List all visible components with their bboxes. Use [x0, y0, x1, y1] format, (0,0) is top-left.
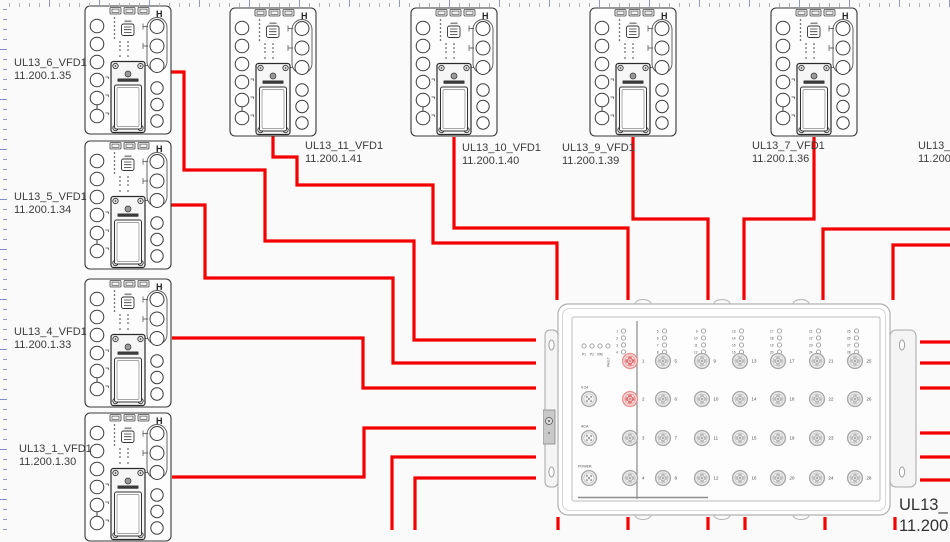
brand-emblem [630, 73, 636, 79]
panel-door [115, 220, 142, 264]
ethernet-switch[interactable]: P1P2RMFAULT11223344V.24ACAPOWER567856789… [543, 298, 918, 530]
port-23 [810, 431, 825, 446]
mounting-bracket-left [543, 330, 558, 487]
terminal-blocks-icon [436, 10, 475, 17]
svg-text:19: 19 [770, 343, 774, 347]
switch-label: UL13_ 11.200 [899, 495, 948, 537]
svg-text:16: 16 [752, 476, 757, 481]
terminal-blocks-icon [615, 10, 654, 17]
brand-emblem [451, 73, 457, 79]
ruler-vertical [0, 0, 7, 530]
vfd-device-ul13-1[interactable]: H [84, 412, 172, 542]
device-name: UL13_6_VFD1 [14, 57, 87, 70]
front-panel [616, 64, 650, 135]
terminal-blocks-icon [110, 415, 149, 422]
svg-text:P1: P1 [582, 353, 586, 357]
vfd-device-ul13-9[interactable]: H [589, 7, 677, 137]
brand-emblem [811, 73, 817, 79]
panel-door [115, 85, 142, 129]
svg-text:13: 13 [732, 329, 736, 333]
svg-text:20: 20 [770, 350, 774, 354]
device-name: UL13_11_VFD1 [305, 140, 383, 153]
svg-text:27: 27 [847, 343, 851, 347]
svg-text:8: 8 [657, 350, 659, 354]
svg-text:14: 14 [732, 336, 736, 340]
port-21 [810, 354, 825, 369]
svg-text:18: 18 [770, 336, 774, 340]
svg-text:11: 11 [714, 436, 719, 441]
wire-right-edge-wire-b[interactable] [893, 245, 950, 300]
device-name: UL13_8_VFD1 [918, 140, 950, 153]
port-12 [695, 471, 710, 486]
brand-emblem [125, 344, 131, 350]
port-16 [733, 471, 748, 486]
svg-text:20: 20 [790, 476, 795, 481]
port-24 [810, 471, 825, 486]
terminal-blocks-icon [255, 10, 294, 17]
brand-emblem [125, 206, 131, 212]
port-15 [733, 431, 748, 446]
terminal-blocks-icon [796, 10, 835, 17]
svg-text:22: 22 [829, 397, 834, 402]
svg-text:23: 23 [809, 343, 813, 347]
panel-door [441, 87, 468, 131]
device-ip: 11.200.1.37 [918, 153, 950, 166]
front-panel [111, 197, 145, 268]
switch-label-name: UL13_ [899, 495, 948, 516]
port-28 [848, 471, 863, 486]
port-25 [848, 354, 863, 369]
front-panel [111, 469, 145, 540]
svg-text:9: 9 [696, 329, 698, 333]
panel-door [620, 87, 647, 131]
port-11 [695, 431, 710, 446]
svg-text:RM: RM [598, 353, 603, 357]
port-9 [695, 354, 710, 369]
front-panel [111, 335, 145, 406]
port-18 [771, 392, 786, 407]
port-1 [623, 354, 638, 369]
port-5 [656, 354, 671, 369]
device-label-ul13-11: UL13_11_VFD111.200.1.41 [305, 140, 383, 166]
port-3 [623, 431, 638, 446]
brand-emblem [270, 73, 276, 79]
svg-text:6: 6 [657, 336, 659, 340]
switch-label-ip: 11.200 [899, 516, 948, 537]
port-13 [733, 354, 748, 369]
svg-text:14: 14 [752, 397, 757, 402]
brand-emblem [125, 478, 131, 484]
device-label-ul13-4: UL13_4_VFD111.200.1.33 [14, 326, 87, 352]
svg-text:23: 23 [829, 436, 834, 441]
nameplate-bar [118, 352, 139, 355]
din-clip [543, 410, 555, 444]
panel-door [115, 492, 142, 536]
svg-text:4: 4 [616, 350, 618, 354]
panel-door [801, 87, 828, 131]
svg-text:10: 10 [714, 397, 719, 402]
front-panel [437, 64, 471, 135]
svg-text:15: 15 [732, 343, 736, 347]
svg-text:21: 21 [809, 329, 813, 333]
port-7 [656, 431, 671, 446]
svg-text:21: 21 [829, 359, 834, 364]
port-6 [656, 392, 671, 407]
svg-text:22: 22 [809, 336, 813, 340]
terminal-blocks-icon [110, 8, 149, 15]
svg-text:28: 28 [847, 350, 851, 354]
vfd-device-ul13-4[interactable]: H [84, 278, 172, 408]
device-label-ul13-1: UL13_1_VFD111.200.1.30 [19, 443, 92, 469]
vfd-device-ul13-10[interactable]: H [410, 7, 498, 137]
svg-text:1: 1 [616, 329, 618, 333]
port-4 [623, 471, 638, 486]
device-label-ul13-8: UL13_8_VFD111.200.1.37 [918, 140, 950, 166]
device-name: UL13_5_VFD1 [14, 191, 87, 204]
svg-text:7: 7 [657, 343, 659, 347]
svg-text:18: 18 [790, 397, 795, 402]
nameplate-bar [804, 81, 825, 84]
aux-port-v24 [582, 392, 597, 407]
vfd-device-ul13-7[interactable]: H [770, 7, 858, 137]
svg-text:12: 12 [694, 350, 698, 354]
svg-text:24: 24 [809, 350, 813, 354]
device-ip: 11.200.1.35 [14, 70, 87, 83]
terminal-blocks-icon [110, 143, 149, 150]
device-ip: 11.200.1.30 [19, 456, 92, 469]
svg-text:16: 16 [732, 350, 736, 354]
front-panel [111, 62, 145, 133]
port-27 [848, 431, 863, 446]
svg-text:25: 25 [847, 329, 851, 333]
device-ip: 11.200.1.41 [305, 153, 383, 166]
svg-text:25: 25 [867, 359, 872, 364]
device-ip: 11.200.1.36 [752, 153, 825, 166]
port-22 [810, 392, 825, 407]
wire-ul13-9-to-switch[interactable] [633, 137, 708, 300]
port-8 [656, 471, 671, 486]
port-2 [623, 392, 638, 407]
device-label-ul13-6: UL13_6_VFD111.200.1.35 [14, 57, 87, 83]
port-17 [771, 354, 786, 369]
svg-text:24: 24 [829, 476, 834, 481]
svg-text:26: 26 [867, 397, 872, 402]
ruler-horizontal [0, 0, 950, 7]
svg-text:11: 11 [694, 343, 698, 347]
device-label-ul13-7: UL13_7_VFD111.200.1.36 [752, 140, 825, 166]
nameplate-bar [118, 79, 139, 82]
svg-text:ACA: ACA [581, 425, 589, 429]
svg-text:15: 15 [752, 436, 757, 441]
panel-door [115, 358, 142, 402]
port-20 [771, 471, 786, 486]
nameplate-bar [118, 214, 139, 217]
aux-port-power [582, 471, 597, 486]
svg-text:26: 26 [847, 336, 851, 340]
switch-frame [543, 300, 916, 520]
terminal-blocks-icon [110, 281, 149, 288]
svg-text:27: 27 [867, 436, 872, 441]
wire-right-edge-wire-a[interactable] [823, 229, 950, 300]
panel-door [260, 87, 287, 131]
wire-bottom-left-wire-b[interactable] [415, 478, 536, 530]
nameplate-bar [263, 81, 284, 84]
device-name: UL13_1_VFD1 [19, 443, 92, 456]
device-label-ul13-9: UL13_9_VFD111.200.1.39 [562, 142, 635, 168]
device-name: UL13_9_VFD1 [562, 142, 635, 155]
wire-ul13-1-to-switch[interactable] [172, 428, 536, 477]
device-ip: 11.200.1.33 [14, 339, 87, 352]
port-14 [733, 392, 748, 407]
svg-text:3: 3 [616, 343, 618, 347]
svg-text:5: 5 [657, 329, 659, 333]
device-name: UL13_10_VFD1 [462, 142, 541, 155]
device-name: UL13_7_VFD1 [752, 140, 825, 153]
front-panel [797, 64, 831, 135]
aux-port-aca [582, 431, 597, 446]
port-26 [848, 392, 863, 407]
brand-emblem [125, 71, 131, 77]
svg-text:POWER: POWER [578, 465, 592, 469]
svg-text:17: 17 [770, 329, 774, 333]
svg-text:10: 10 [694, 336, 698, 340]
nameplate-bar [444, 81, 465, 84]
svg-text:FAULT: FAULT [607, 357, 611, 367]
vfd-device-ul13-5[interactable]: H [84, 140, 172, 270]
port-10 [695, 392, 710, 407]
device-ip: 11.200.1.40 [462, 155, 541, 168]
device-label-ul13-5: UL13_5_VFD111.200.1.34 [14, 191, 87, 217]
svg-text:12: 12 [714, 476, 719, 481]
device-ip: 11.200.1.39 [562, 155, 635, 168]
svg-text:28: 28 [867, 476, 872, 481]
device-label-ul13-10: UL13_10_VFD111.200.1.40 [462, 142, 541, 168]
svg-text:19: 19 [790, 436, 795, 441]
vfd-device-ul13-6[interactable]: H [84, 5, 172, 135]
svg-text:2: 2 [616, 336, 618, 340]
front-panel [256, 64, 290, 135]
port-19 [771, 431, 786, 446]
device-name: UL13_4_VFD1 [14, 326, 87, 339]
nameplate-bar [118, 486, 139, 489]
svg-text:V.24: V.24 [581, 386, 588, 390]
svg-text:P2: P2 [590, 353, 594, 357]
mounting-bracket-right [890, 330, 916, 487]
vfd-device-ul13-11[interactable]: H [229, 7, 317, 137]
nameplate-bar [623, 81, 644, 84]
device-ip: 11.200.1.34 [14, 204, 87, 217]
svg-text:17: 17 [790, 359, 795, 364]
svg-text:13: 13 [752, 359, 757, 364]
